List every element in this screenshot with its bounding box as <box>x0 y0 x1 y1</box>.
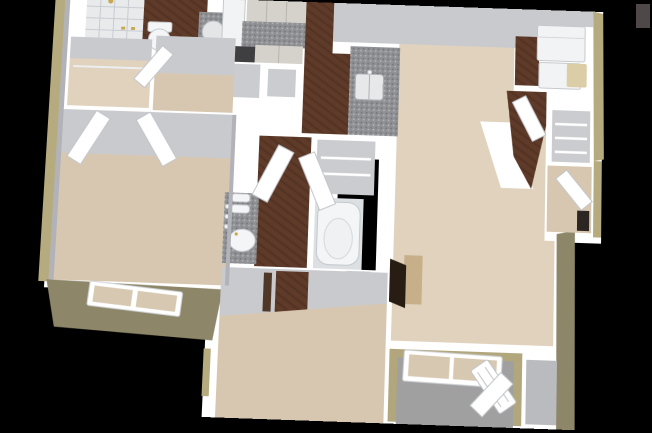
bedroom2-door-edge <box>262 273 272 312</box>
floor-plan-rendering <box>0 0 652 433</box>
patio <box>387 349 557 430</box>
fireplace-side-panel <box>403 255 423 305</box>
exterior-trim-entry-right <box>593 161 602 238</box>
laundry-room <box>515 9 594 90</box>
bedroom-1 <box>53 109 233 285</box>
floorplan-stage <box>0 0 652 416</box>
nook-carpet <box>153 73 234 113</box>
oval-sink <box>228 229 255 252</box>
upper-cabinets <box>246 0 308 25</box>
bedroom2-carpet <box>215 298 387 424</box>
front-door-opening <box>577 211 589 232</box>
laundry-wood-grain <box>515 36 540 86</box>
coat-closet <box>552 110 591 163</box>
sink-faucet-icon <box>368 70 372 74</box>
patio-inner-wall-right <box>513 359 522 426</box>
laundry-hamper <box>567 63 587 87</box>
entry-foyer <box>547 110 593 233</box>
hall-closet-2 <box>267 69 296 97</box>
exterior-face-right <box>554 230 577 430</box>
bedroom1-carpet <box>53 153 231 286</box>
granite-texture <box>241 21 305 48</box>
fireplace-front <box>389 259 407 308</box>
window-pane <box>408 354 450 379</box>
walk-in-shower <box>85 0 145 41</box>
corner-fireplace <box>389 255 423 309</box>
shower-valve-icon <box>121 27 125 30</box>
exterior-trim-right-top <box>592 12 605 162</box>
bedroom-2 <box>215 267 388 423</box>
kitchen-peninsula <box>348 46 401 136</box>
rolled-towel <box>232 194 250 203</box>
laundry-wall-face <box>516 9 593 27</box>
gray-rectangle-watermark <box>636 4 650 28</box>
shower-valve-icon <box>131 27 135 30</box>
washer <box>537 25 585 62</box>
bedroom2-doorway-grain <box>275 271 309 315</box>
range <box>235 46 256 62</box>
rolled-towel <box>231 205 249 214</box>
